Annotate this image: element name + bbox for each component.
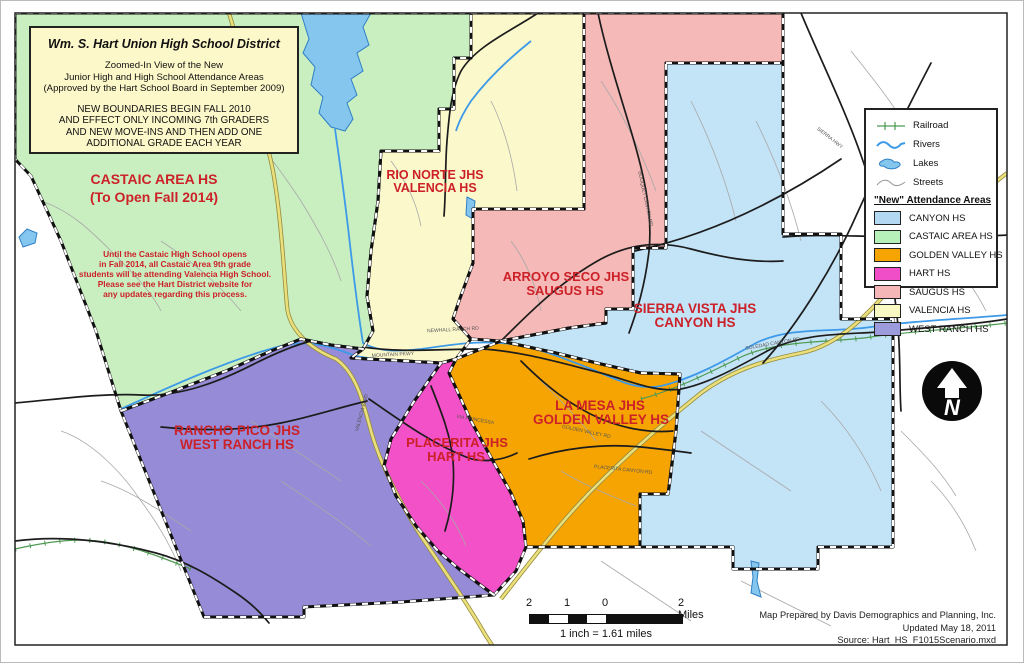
castaic-note-line: in Fall 2014, all Castaic Area 9th grade	[99, 259, 251, 269]
color-swatch	[874, 230, 901, 244]
label-sierra-vista-line1: SIERRA VISTA JHS	[634, 301, 757, 316]
legend-area-hart: HART HS	[874, 265, 996, 284]
legend-item-railroad: Railroad	[874, 116, 996, 135]
title-box: Wm. S. Hart Union High School District Z…	[29, 26, 299, 154]
legend-area-west-ranch: WEST RANCH HS	[874, 320, 996, 339]
castaic-note-line: any updates regarding this process.	[103, 289, 247, 299]
legend-area-saugus: SAUGUS HS	[874, 283, 996, 302]
map-notice-line: AND EFFECT ONLY INCOMING 7th GRADERS	[31, 115, 297, 127]
legend-label: SAUGUS HS	[909, 287, 965, 298]
label-arroyo-seco-line1: ARROYO SECO JHS	[503, 269, 630, 284]
color-swatch	[874, 248, 901, 262]
legend-label: Railroad	[913, 120, 948, 131]
color-swatch	[874, 211, 901, 225]
legend-label: Streets	[913, 177, 943, 188]
street-icon	[874, 177, 908, 189]
north-arrow: N	[922, 361, 982, 421]
legend-label: HART HS	[909, 268, 950, 279]
map-subtitle-line: (Approved by the Hart School Board in Se…	[31, 83, 297, 95]
label-rancho-pico-line2: WEST RANCH HS	[180, 437, 294, 452]
credits-line: Source: Hart_HS_F1015Scenario.mxd	[666, 634, 996, 647]
map-notice-line: NEW BOUNDARIES BEGIN FALL 2010	[31, 104, 297, 116]
color-swatch	[874, 322, 901, 336]
credits-line: Map Prepared by Davis Demographics and P…	[666, 609, 996, 622]
legend-item-lakes: Lakes	[874, 154, 996, 173]
scale-bar-graphic	[529, 614, 683, 624]
legend-area-golden-valley: GOLDEN VALLEY HS	[874, 246, 996, 265]
map-credits: Map Prepared by Davis Demographics and P…	[666, 609, 996, 647]
map-notice-line: AND NEW MOVE-INS AND THEN ADD ONE	[31, 127, 297, 139]
scale-tick: 0	[602, 597, 608, 609]
label-placerita-line1: PLACERITA JHS	[406, 435, 508, 450]
legend-label: CANYON HS	[909, 213, 965, 224]
legend-label: GOLDEN VALLEY HS	[909, 250, 1003, 261]
legend-label: Lakes	[913, 158, 938, 169]
color-swatch	[874, 267, 901, 281]
legend-label: CASTAIC AREA HS	[909, 231, 993, 242]
label-sierra-vista-line2: CANYON HS	[654, 315, 735, 330]
label-arroyo-seco-line2: SAUGUS HS	[526, 283, 604, 298]
legend-item-streets: Streets	[874, 173, 996, 192]
river-icon	[874, 139, 908, 151]
legend-area-valencia: VALENCIA HS	[874, 302, 996, 321]
label-rancho-pico-line1: RANCHO PICO JHS	[174, 423, 300, 438]
scale-tick: 1	[564, 597, 570, 609]
map-sheet: NEWHALL RANCH RDMOUNTAIN PKWYVALENCIA BL…	[0, 0, 1024, 663]
castaic-note-line: Until the Castaic High School opens	[103, 249, 247, 259]
legend-area-castaic: CASTAIC AREA HS	[874, 228, 996, 247]
color-swatch	[874, 304, 901, 318]
legend-label: Rivers	[913, 139, 940, 150]
label-la-mesa-line2: GOLDEN VALLEY HS	[533, 412, 669, 427]
map-title: Wm. S. Hart Union High School District	[31, 37, 297, 51]
label-rio-norte-line1: RIO NORTE JHS	[386, 168, 483, 182]
map-subtitle-line: Junior High and High School Attendance A…	[31, 72, 297, 84]
color-swatch	[874, 285, 901, 299]
credits-line: Updated May 18, 2011	[666, 622, 996, 635]
label-castaic-line2: (To Open Fall 2014)	[90, 189, 218, 205]
map-notice-line: ADDITIONAL GRADE EACH YEAR	[31, 138, 297, 150]
label-placerita-line2: HART HS	[427, 449, 485, 464]
north-arrow-letter: N	[944, 395, 961, 420]
map-subtitle-line: Zoomed-In View of the New	[31, 60, 297, 72]
label-castaic-line1: CASTAIC AREA HS	[90, 171, 217, 187]
label-rio-norte-line2: VALENCIA HS	[393, 181, 476, 195]
legend-header: "New" Attendance Areas	[874, 195, 996, 206]
lake-icon	[874, 157, 908, 171]
label-la-mesa-line1: LA MESA JHS	[555, 398, 645, 413]
legend-item-rivers: Rivers	[874, 135, 996, 154]
legend-label: VALENCIA HS	[909, 305, 971, 316]
castaic-note-line: students will be attending Valencia High…	[79, 269, 271, 279]
castaic-note-line: Please see the Hart District website for	[98, 279, 253, 289]
railroad-icon	[874, 120, 908, 132]
legend: Railroad Rivers Lakes Streets "New" Atte…	[864, 108, 998, 288]
castaic-note: Until the Castaic High School opens in F…	[79, 249, 271, 299]
legend-label: WEST RANCH HS	[909, 324, 989, 335]
scale-tick: 2	[526, 597, 532, 609]
legend-area-canyon: CANYON HS	[874, 209, 996, 228]
